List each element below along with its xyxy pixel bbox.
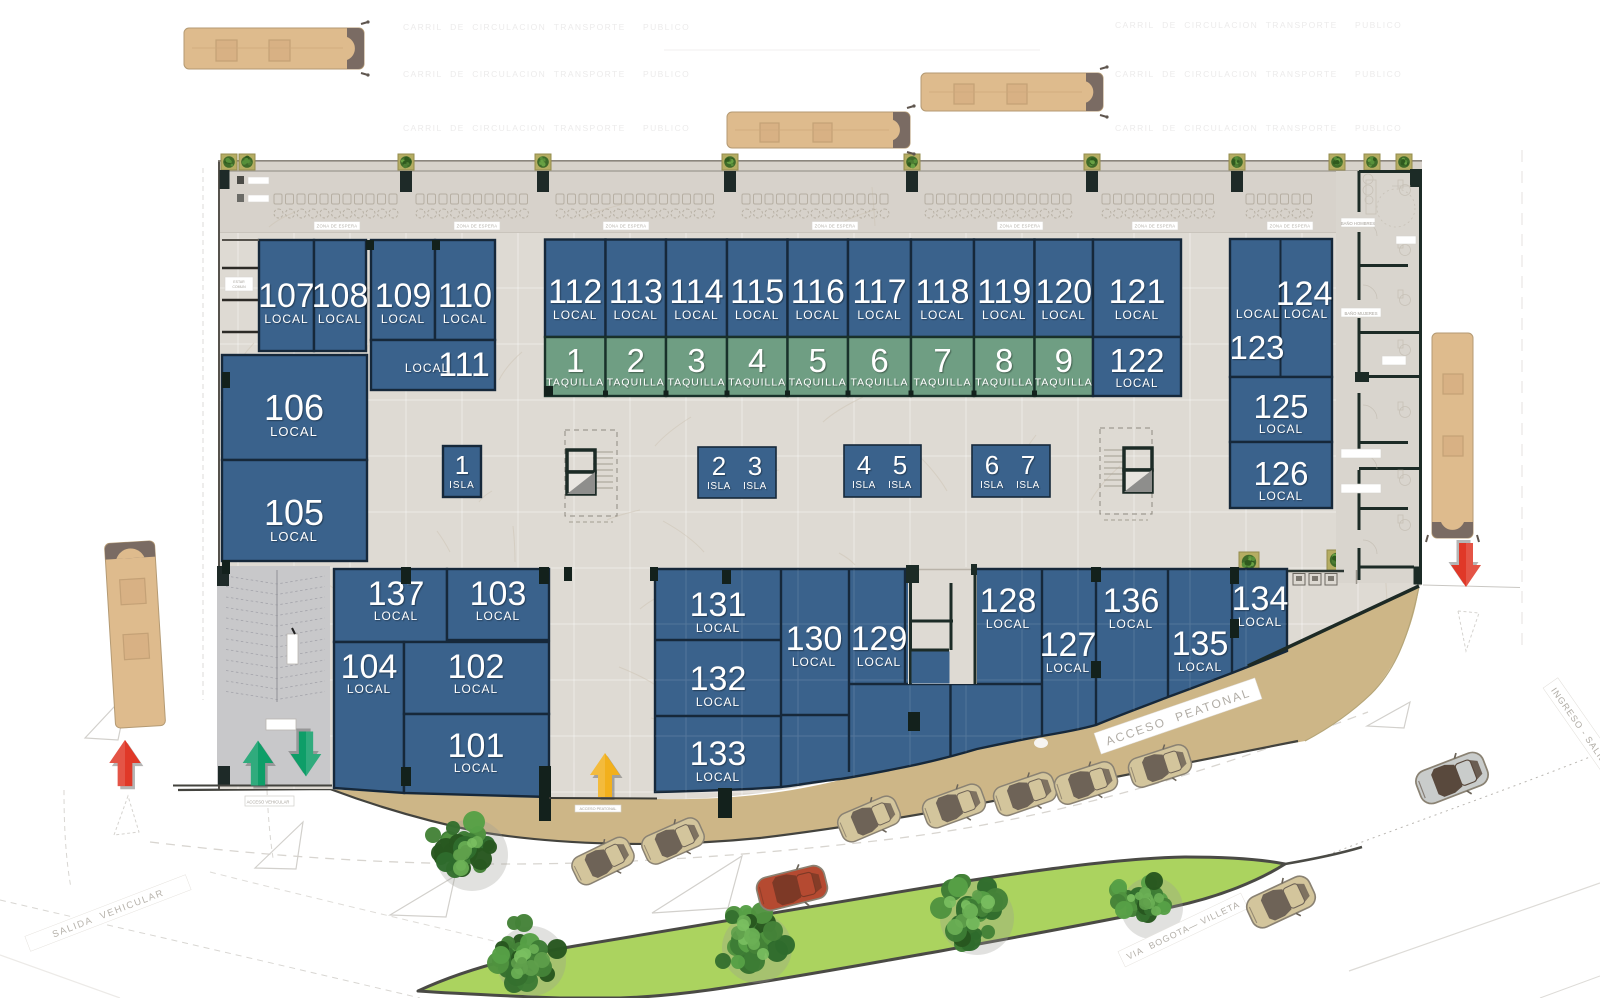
svg-text:ISLA: ISLA [888, 480, 912, 491]
svg-text:LOCAL: LOCAL [1238, 615, 1282, 629]
svg-text:TAQUILLA: TAQUILLA [668, 377, 726, 389]
svg-text:PUBLICO: PUBLICO [643, 69, 690, 79]
svg-text:136: 136 [1103, 582, 1160, 620]
svg-text:CARRIL DE CIRCULACION TRANS: CARRIL DE CIRCULACION TRANSPORTE [403, 22, 626, 32]
svg-text:109: 109 [375, 277, 432, 315]
svg-text:CARRIL DE CIRCULACION TRANS: CARRIL DE CIRCULACION TRANSPORTE [403, 69, 626, 79]
svg-text:LOCAL: LOCAL [1259, 422, 1303, 436]
svg-text:LOCAL: LOCAL [405, 361, 449, 375]
svg-text:117: 117 [852, 273, 906, 311]
svg-text:LOCAL: LOCAL [1109, 617, 1153, 631]
svg-text:ZONA DE ESPERA: ZONA DE ESPERA [1135, 224, 1176, 229]
svg-text:ZONA DE ESPERA: ZONA DE ESPERA [1270, 224, 1311, 229]
svg-text:TAQUILLA: TAQUILLA [546, 377, 604, 389]
svg-text:CARRIL DE CIRCULACION TRANS: CARRIL DE CIRCULACION TRANSPORTE [1115, 69, 1338, 79]
svg-text:133: 133 [690, 735, 747, 773]
svg-text:128: 128 [980, 582, 1037, 620]
svg-text:TAQUILLA: TAQUILLA [789, 377, 847, 389]
svg-text:ISLA: ISLA [743, 481, 767, 492]
svg-text:PUBLICO: PUBLICO [643, 22, 690, 32]
svg-text:119: 119 [977, 273, 1031, 311]
svg-text:115: 115 [730, 273, 784, 311]
svg-text:LOCAL: LOCAL [674, 308, 718, 322]
svg-text:PUBLICO: PUBLICO [1355, 123, 1402, 133]
svg-text:LOCAL: LOCAL [1236, 307, 1280, 321]
svg-text:ACCESO VEHICULAR: ACCESO VEHICULAR [247, 800, 290, 805]
svg-text:135: 135 [1172, 625, 1229, 663]
svg-text:137: 137 [368, 575, 425, 613]
svg-text:ESTAR: ESTAR [233, 280, 245, 284]
svg-text:LOCAL: LOCAL [857, 655, 901, 669]
svg-text:PUBLICO: PUBLICO [1355, 69, 1402, 79]
svg-text:PUBLICO: PUBLICO [643, 123, 690, 133]
svg-text:ZONA DE ESPERA: ZONA DE ESPERA [457, 224, 498, 229]
svg-text:TAQUILLA: TAQUILLA [607, 377, 665, 389]
svg-text:TAQUILLA: TAQUILLA [728, 377, 786, 389]
svg-text:LOCAL: LOCAL [1116, 378, 1159, 390]
svg-text:LOCAL: LOCAL [696, 695, 740, 709]
svg-text:LOCAL: LOCAL [347, 682, 391, 696]
svg-text:7: 7 [1021, 450, 1035, 480]
svg-text:1: 1 [566, 342, 584, 379]
svg-text:BAÑO HOMBRES: BAÑO HOMBRES [1341, 221, 1375, 226]
svg-text:LOCAL: LOCAL [1259, 489, 1303, 503]
svg-text:PUBLICO: PUBLICO [1355, 20, 1402, 30]
svg-text:112: 112 [548, 273, 602, 311]
svg-text:101: 101 [448, 727, 505, 765]
svg-text:TAQUILLA: TAQUILLA [851, 377, 909, 389]
svg-text:LOCAL: LOCAL [1042, 308, 1086, 322]
svg-text:TAQUILLA: TAQUILLA [975, 377, 1033, 389]
svg-text:LOCAL: LOCAL [553, 308, 597, 322]
svg-text:LOCAL: LOCAL [792, 655, 836, 669]
svg-text:LOCAL: LOCAL [796, 308, 840, 322]
svg-text:134: 134 [1232, 580, 1289, 618]
svg-text:110: 110 [438, 277, 492, 315]
svg-text:106: 106 [264, 387, 324, 428]
svg-text:104: 104 [341, 648, 398, 686]
svg-text:103: 103 [470, 575, 527, 613]
svg-text:5: 5 [809, 342, 827, 379]
svg-text:113: 113 [609, 273, 663, 311]
svg-text:9: 9 [1055, 342, 1073, 379]
svg-text:LOCAL: LOCAL [264, 312, 308, 326]
svg-text:120: 120 [1035, 273, 1092, 311]
svg-text:126: 126 [1253, 455, 1308, 492]
svg-text:CARRIL DE CIRCULACION TRANS: CARRIL DE CIRCULACION TRANSPORTE [1115, 123, 1338, 133]
svg-text:LOCAL: LOCAL [696, 770, 740, 784]
svg-text:LOCAL: LOCAL [857, 308, 901, 322]
svg-text:LOCAL: LOCAL [374, 609, 418, 623]
svg-text:116: 116 [791, 273, 845, 311]
svg-text:4: 4 [857, 450, 871, 480]
svg-text:129: 129 [851, 620, 908, 658]
svg-text:LOCAL: LOCAL [318, 312, 362, 326]
svg-text:8: 8 [995, 342, 1013, 379]
svg-text:LOCAL: LOCAL [1046, 661, 1090, 675]
svg-text:ZONA DE ESPERA: ZONA DE ESPERA [317, 224, 358, 229]
svg-text:131: 131 [690, 586, 747, 624]
svg-text:LOCAL: LOCAL [696, 621, 740, 635]
svg-text:TAQUILLA: TAQUILLA [914, 377, 972, 389]
svg-text:ZONA DE ESPERA: ZONA DE ESPERA [815, 224, 856, 229]
svg-text:LOCAL: LOCAL [614, 308, 658, 322]
svg-text:2: 2 [627, 342, 645, 379]
svg-text:TAQUILLA: TAQUILLA [1035, 377, 1093, 389]
svg-text:107: 107 [258, 277, 315, 315]
svg-text:LOCAL: LOCAL [982, 308, 1026, 322]
svg-text:5: 5 [893, 450, 907, 480]
svg-text:ZONA DE ESPERA: ZONA DE ESPERA [606, 224, 647, 229]
svg-text:LOCAL: LOCAL [270, 529, 318, 544]
svg-text:ISLA: ISLA [707, 481, 731, 492]
svg-text:ISLA: ISLA [980, 480, 1004, 491]
svg-text:4: 4 [748, 342, 766, 379]
svg-text:CARRIL DE CIRCULACION TRANS: CARRIL DE CIRCULACION TRANSPORTE [1115, 20, 1338, 30]
svg-text:108: 108 [312, 277, 369, 315]
svg-text:COMUN: COMUN [232, 285, 246, 289]
svg-text:114: 114 [669, 273, 723, 311]
svg-text:LOCAL: LOCAL [735, 308, 779, 322]
svg-text:LOCAL: LOCAL [1284, 307, 1328, 321]
svg-text:LOCAL: LOCAL [454, 761, 498, 775]
svg-text:102: 102 [448, 648, 505, 686]
svg-text:CARRIL DE CIRCULACION TRANS: CARRIL DE CIRCULACION TRANSPORTE [403, 123, 626, 133]
svg-text:LOCAL: LOCAL [476, 609, 520, 623]
svg-text:LOCAL: LOCAL [920, 308, 964, 322]
svg-text:LOCAL: LOCAL [1115, 308, 1159, 322]
svg-text:118: 118 [915, 273, 969, 311]
svg-text:BAÑO MUJERES: BAÑO MUJERES [1344, 311, 1377, 316]
svg-text:LOCAL: LOCAL [381, 312, 425, 326]
svg-text:ZONA DE ESPERA: ZONA DE ESPERA [1000, 224, 1041, 229]
svg-text:ISLA: ISLA [1016, 480, 1040, 491]
svg-text:LOCAL: LOCAL [986, 617, 1030, 631]
svg-text:ISLA: ISLA [449, 480, 475, 491]
svg-text:LOCAL: LOCAL [443, 312, 487, 326]
svg-text:1: 1 [455, 450, 469, 480]
svg-text:127: 127 [1040, 626, 1097, 664]
svg-text:LOCAL: LOCAL [1178, 660, 1222, 674]
svg-text:7: 7 [933, 342, 951, 379]
svg-text:LOCAL: LOCAL [270, 424, 318, 439]
svg-text:ISLA: ISLA [852, 480, 876, 491]
svg-text:123: 123 [1229, 329, 1284, 366]
svg-text:3: 3 [687, 342, 705, 379]
svg-text:6: 6 [985, 450, 999, 480]
svg-text:105: 105 [264, 492, 324, 533]
svg-text:122: 122 [1109, 342, 1164, 379]
svg-text:130: 130 [786, 620, 843, 658]
svg-text:ACCESO PEATONAL: ACCESO PEATONAL [580, 807, 617, 811]
svg-text:LOCAL: LOCAL [454, 682, 498, 696]
svg-text:2: 2 [712, 451, 726, 481]
svg-text:6: 6 [870, 342, 888, 379]
svg-text:132: 132 [690, 660, 747, 698]
svg-text:3: 3 [748, 451, 762, 481]
svg-text:121: 121 [1109, 273, 1166, 311]
svg-text:125: 125 [1253, 388, 1308, 425]
